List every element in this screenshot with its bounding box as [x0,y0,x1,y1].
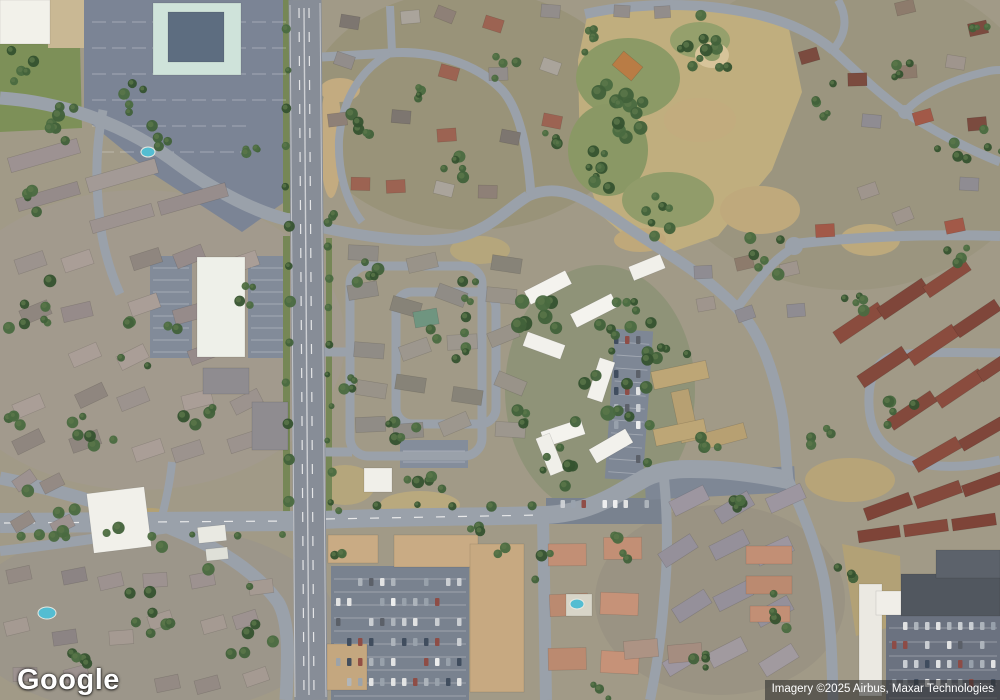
attribution: Imagery ©2025 Airbus, Maxar Technologies [765,680,1000,700]
google-logo[interactable]: Google [17,664,120,697]
map-viewport[interactable]: Google Imagery ©2025 Airbus, Maxar Techn… [0,0,1000,700]
satellite-imagery[interactable] [0,0,1000,700]
